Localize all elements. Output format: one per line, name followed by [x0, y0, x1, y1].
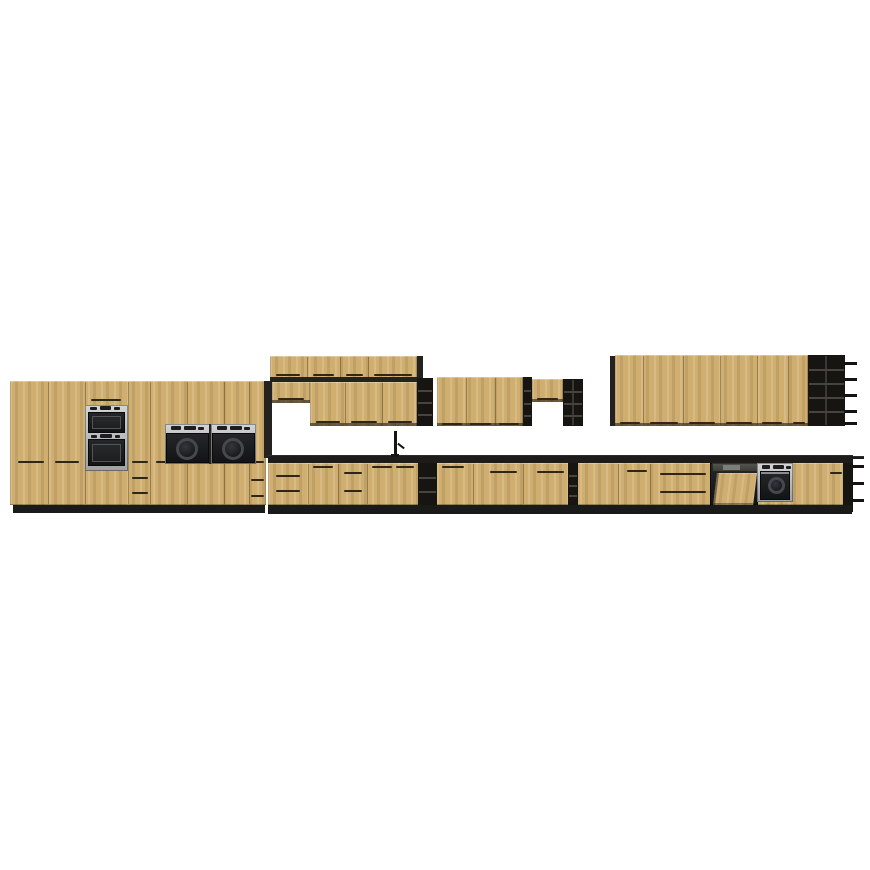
drawer-groove — [660, 491, 706, 493]
handle-groove — [689, 422, 715, 424]
dishwasher-display — [723, 465, 740, 470]
appliance-button — [230, 426, 242, 430]
faucet-handle — [397, 443, 405, 450]
microwave-button — [114, 407, 120, 410]
countertop — [268, 455, 853, 463]
shelf-board — [418, 402, 432, 404]
drawer-groove — [251, 495, 264, 497]
door-seam — [495, 378, 496, 425]
door-seam — [650, 464, 651, 504]
handle-groove — [499, 423, 519, 425]
shelf-board — [809, 411, 844, 413]
drawer-groove — [132, 492, 148, 494]
plinth-main — [268, 505, 852, 514]
microwave-button — [100, 406, 111, 410]
shelf-side-fin — [845, 410, 857, 413]
faucet-base — [391, 454, 399, 457]
handle-groove — [55, 461, 79, 463]
handle-groove — [278, 398, 304, 400]
handle-groove — [316, 421, 340, 423]
drawer-groove — [344, 472, 362, 474]
wall-cabinet-mid — [310, 382, 417, 426]
microwave-inner-frame — [92, 416, 121, 429]
oven-inner-frame — [92, 444, 121, 462]
shelf-board — [809, 383, 844, 385]
door-seam — [368, 357, 369, 378]
shelf-board — [569, 485, 577, 487]
shelf-side-fin — [845, 378, 857, 381]
shelf-side-fin — [845, 422, 857, 425]
handle-groove — [276, 374, 300, 376]
handle-groove — [388, 421, 412, 423]
door-seam — [683, 356, 684, 425]
appliance-button — [184, 426, 196, 430]
tall-run-right-side-panel — [264, 381, 272, 458]
compact-appliance-ring — [176, 438, 198, 460]
handle-groove — [537, 398, 558, 400]
handle-groove — [442, 423, 462, 425]
shelf-board — [809, 369, 844, 371]
handle-groove — [627, 470, 647, 472]
oven-button — [91, 435, 97, 438]
shelf-board — [524, 403, 531, 405]
door-seam — [757, 356, 758, 425]
door-seam — [150, 382, 151, 504]
oven-button — [762, 465, 770, 469]
handle-groove — [537, 471, 564, 473]
oven-ring — [768, 477, 785, 494]
handle-groove — [793, 422, 805, 424]
handle-groove — [726, 422, 752, 424]
wall-cabinet-group-2 — [437, 377, 523, 426]
shelf-board — [564, 391, 582, 393]
door-seam — [345, 383, 346, 425]
shelf-side-fin — [853, 465, 864, 468]
shelf-side-fin — [853, 482, 864, 485]
drawer-groove — [132, 477, 148, 479]
appliance-button — [171, 426, 181, 430]
plinth-left — [13, 505, 265, 513]
appliance-button — [217, 426, 227, 430]
appliance-button — [198, 427, 204, 430]
shelf-board — [564, 403, 582, 405]
oven-button — [100, 434, 112, 438]
door-seam — [643, 356, 644, 425]
door-seam — [307, 357, 308, 378]
handle-groove — [346, 374, 363, 376]
microwave-button — [90, 407, 97, 410]
handle-groove — [351, 421, 377, 423]
shelf-board — [419, 491, 436, 493]
shelf-board — [419, 477, 436, 479]
shelf-side-fin — [853, 499, 864, 502]
handle-groove — [470, 423, 491, 425]
handle-groove — [374, 374, 412, 376]
handle-groove — [490, 471, 517, 473]
shelf-board — [569, 475, 577, 477]
base-open-shelf-1 — [418, 463, 437, 505]
handle-groove — [620, 422, 640, 424]
shelf-board — [418, 414, 432, 416]
dishwasher-panel — [713, 473, 757, 505]
handle-groove — [91, 399, 121, 401]
door-seam — [340, 357, 341, 378]
door-seam — [308, 464, 309, 504]
drawer-groove — [276, 490, 300, 492]
kitchen-product-render — [0, 0, 870, 870]
drawer-groove — [344, 490, 362, 492]
door-seam — [128, 382, 129, 504]
drawer-groove — [276, 475, 300, 477]
wall-open-shelf-2 — [523, 377, 532, 426]
appliance-seam — [209, 424, 211, 464]
shelf-board — [809, 397, 844, 399]
oven-button — [115, 435, 120, 438]
shelf-side-fin — [845, 362, 857, 365]
handle-groove — [313, 466, 333, 468]
oven-button — [786, 466, 791, 469]
shelf-side-fin — [845, 394, 857, 397]
door-seam — [466, 378, 467, 425]
shelf-board — [524, 390, 531, 392]
appliance-button — [244, 427, 250, 430]
countertop-end-overhang — [853, 456, 864, 459]
shelf-board — [564, 415, 582, 417]
drawer-groove — [660, 473, 706, 475]
oven-button — [773, 465, 784, 469]
door-seam — [382, 383, 383, 425]
oven-door-handle — [761, 472, 789, 474]
handle-groove — [762, 422, 782, 424]
door-seam — [523, 464, 524, 504]
door-seam — [473, 464, 474, 504]
handle-groove — [830, 472, 842, 474]
door-seam — [618, 464, 619, 504]
handle-groove — [442, 466, 464, 468]
handle-groove — [18, 461, 44, 463]
shelf-board — [569, 495, 577, 497]
door-seam — [720, 356, 721, 425]
door-seam — [367, 464, 368, 504]
handle-groove — [396, 466, 414, 468]
shelf-board — [524, 415, 531, 417]
handle-groove — [132, 461, 148, 463]
shelf-board — [418, 390, 432, 392]
door-seam — [788, 356, 789, 425]
handle-groove — [650, 422, 678, 424]
drawer-groove — [251, 479, 264, 481]
door-seam — [338, 464, 339, 504]
handle-groove — [372, 466, 392, 468]
handle-groove — [313, 374, 334, 376]
compact-appliance-ring — [222, 438, 244, 460]
base-open-shelf-2 — [568, 463, 578, 505]
door-seam — [48, 382, 49, 504]
shelf-divider — [825, 356, 827, 425]
